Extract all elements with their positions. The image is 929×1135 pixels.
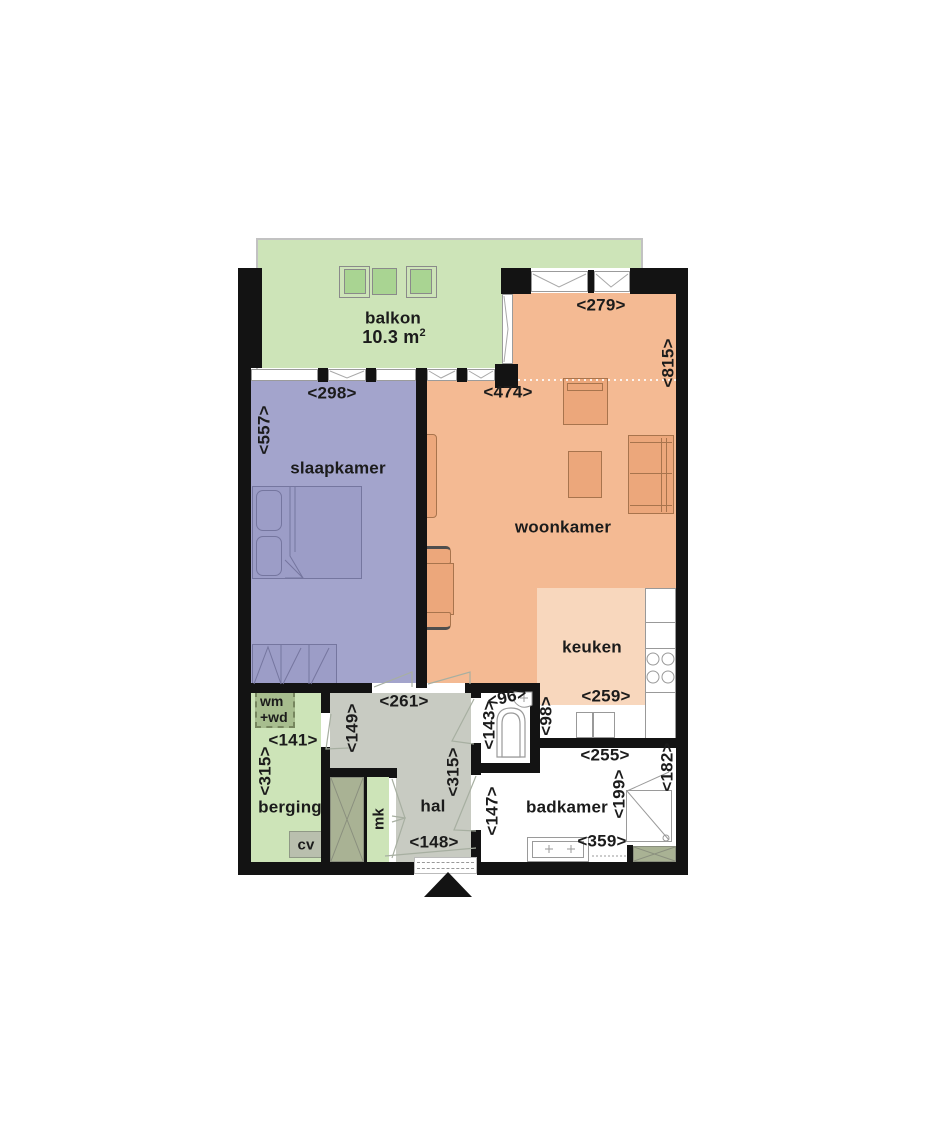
armchair [563,378,608,425]
counter-divider [646,622,675,623]
dim-slaapkamer-height: <557> [256,405,273,454]
wall [389,768,397,778]
window [376,369,416,381]
label-keuken: keuken [562,639,622,656]
balkon-edge-right [641,238,643,269]
label-hal: hal [420,798,445,815]
wall [321,693,330,713]
balkon-edge-top [256,238,643,240]
wall [330,768,392,777]
wall [364,777,367,862]
dim-woonkamer-top-width: <279> [576,297,625,314]
wall [238,268,262,368]
wall [471,748,481,775]
kitchen-unit [593,712,615,738]
dim-keuken-width: <259> [581,688,630,705]
wall [501,268,531,294]
wall [676,268,688,875]
window [427,369,457,381]
wall [627,845,633,862]
label-meterkast: mk [372,808,387,830]
kitchen-unit [576,712,593,738]
wall [471,763,540,773]
balcony-table [372,268,397,295]
toilet [497,708,525,757]
dim-badkamer-width: <255> [580,747,629,764]
wall [477,862,688,875]
window [531,271,588,292]
pillow [256,536,282,576]
floor-plan: wm +wd [0,0,929,1135]
label-balkon: balkon [365,310,421,327]
balcony-chair-seat [344,269,366,294]
dim-hal-height: <315> [445,747,462,796]
window [251,369,318,381]
label-badkamer: badkamer [526,799,608,816]
balcony-chair-seat [410,269,432,294]
wardrobe-hal [330,777,364,862]
wm-wd-box: wm +wd [255,691,295,728]
label-woonkamer: woonkamer [515,519,611,536]
wd-label: +wd [260,710,293,725]
window [594,271,630,292]
shower [626,790,672,842]
dim-keuken-strip-height: <98> [538,696,555,736]
window [467,369,495,381]
entrance-arrow [424,872,472,897]
counter-divider [646,648,675,649]
dim-badkamer-height-left: <147> [484,786,501,835]
label-berging: berging [258,799,322,816]
wall [471,683,481,698]
dim-berging-height: <315> [257,746,274,795]
window [502,294,513,364]
wall [331,683,372,693]
closet-bottom-right [633,846,676,862]
room-balkon-strip [503,240,643,268]
label-balkon-area: 10.3 m2 [362,328,426,346]
kitchen-counter [645,588,676,739]
window-mullion [416,368,427,382]
room-balkon [258,240,503,368]
washbasin-inner [532,841,584,858]
wall [238,368,251,875]
entrance-threshold [414,857,477,874]
window-mullion [457,368,467,382]
window [328,369,366,381]
balcony-chair [406,266,437,298]
label-cv: cv [297,838,314,853]
pillow [256,490,282,531]
dim-badkamer-height-right: <182> [659,742,676,791]
wall [630,268,676,294]
window-mullion [366,368,376,382]
wall [238,683,331,693]
dim-slaapkamer-width: <298> [307,385,356,402]
wall-divider-slaapkamer [416,380,427,688]
dim-hal-entry-width: <148> [409,834,458,851]
sofa [628,435,674,514]
dim-badkamer-width-bottom: <359> [577,833,626,850]
wm-label: wm [260,694,293,709]
dim-woonkamer-height: <815> [660,338,677,387]
dim-berging-width: <141> [268,732,317,749]
dim-woonkamer-balkon-width: <474> [483,384,532,401]
dim-hal-width: <261> [379,693,428,710]
wall [321,747,330,862]
dim-badkamer-height-inner: <199> [611,769,628,818]
window-mullion [318,368,328,382]
balcony-chair [339,266,370,298]
counter-divider [646,692,675,693]
dim-toilet-height: <143> [481,700,498,749]
dim-hal-door: <149> [344,703,361,752]
armchair-back [567,383,603,391]
ottoman [568,451,602,498]
wardrobe-slaapkamer [252,644,337,685]
wall [238,862,414,875]
label-slaapkamer: slaapkamer [290,460,386,477]
